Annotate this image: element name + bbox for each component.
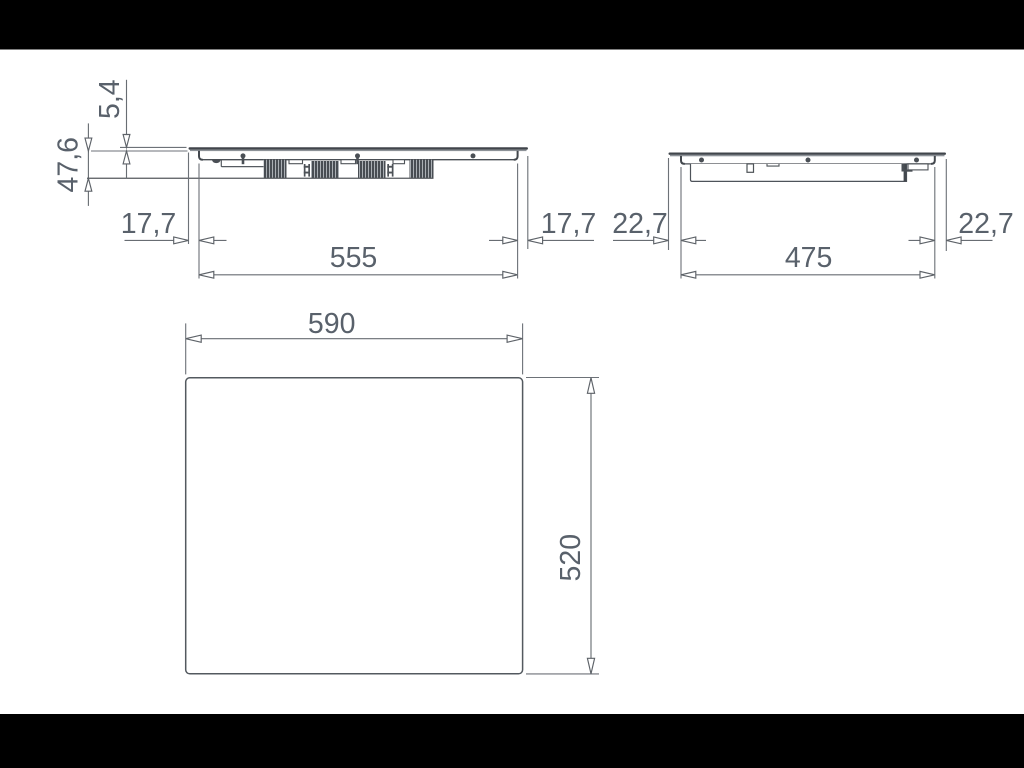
svg-text:520: 520: [555, 534, 587, 582]
svg-text:17,7: 17,7: [541, 208, 596, 240]
svg-text:22,7: 22,7: [958, 208, 1013, 240]
svg-text:555: 555: [330, 242, 378, 274]
svg-text:47,6: 47,6: [53, 137, 85, 192]
svg-text:22,7: 22,7: [612, 208, 667, 240]
svg-text:17,7: 17,7: [121, 208, 176, 240]
svg-text:590: 590: [308, 308, 356, 340]
svg-text:475: 475: [785, 242, 833, 274]
svg-text:5,4: 5,4: [94, 79, 126, 119]
